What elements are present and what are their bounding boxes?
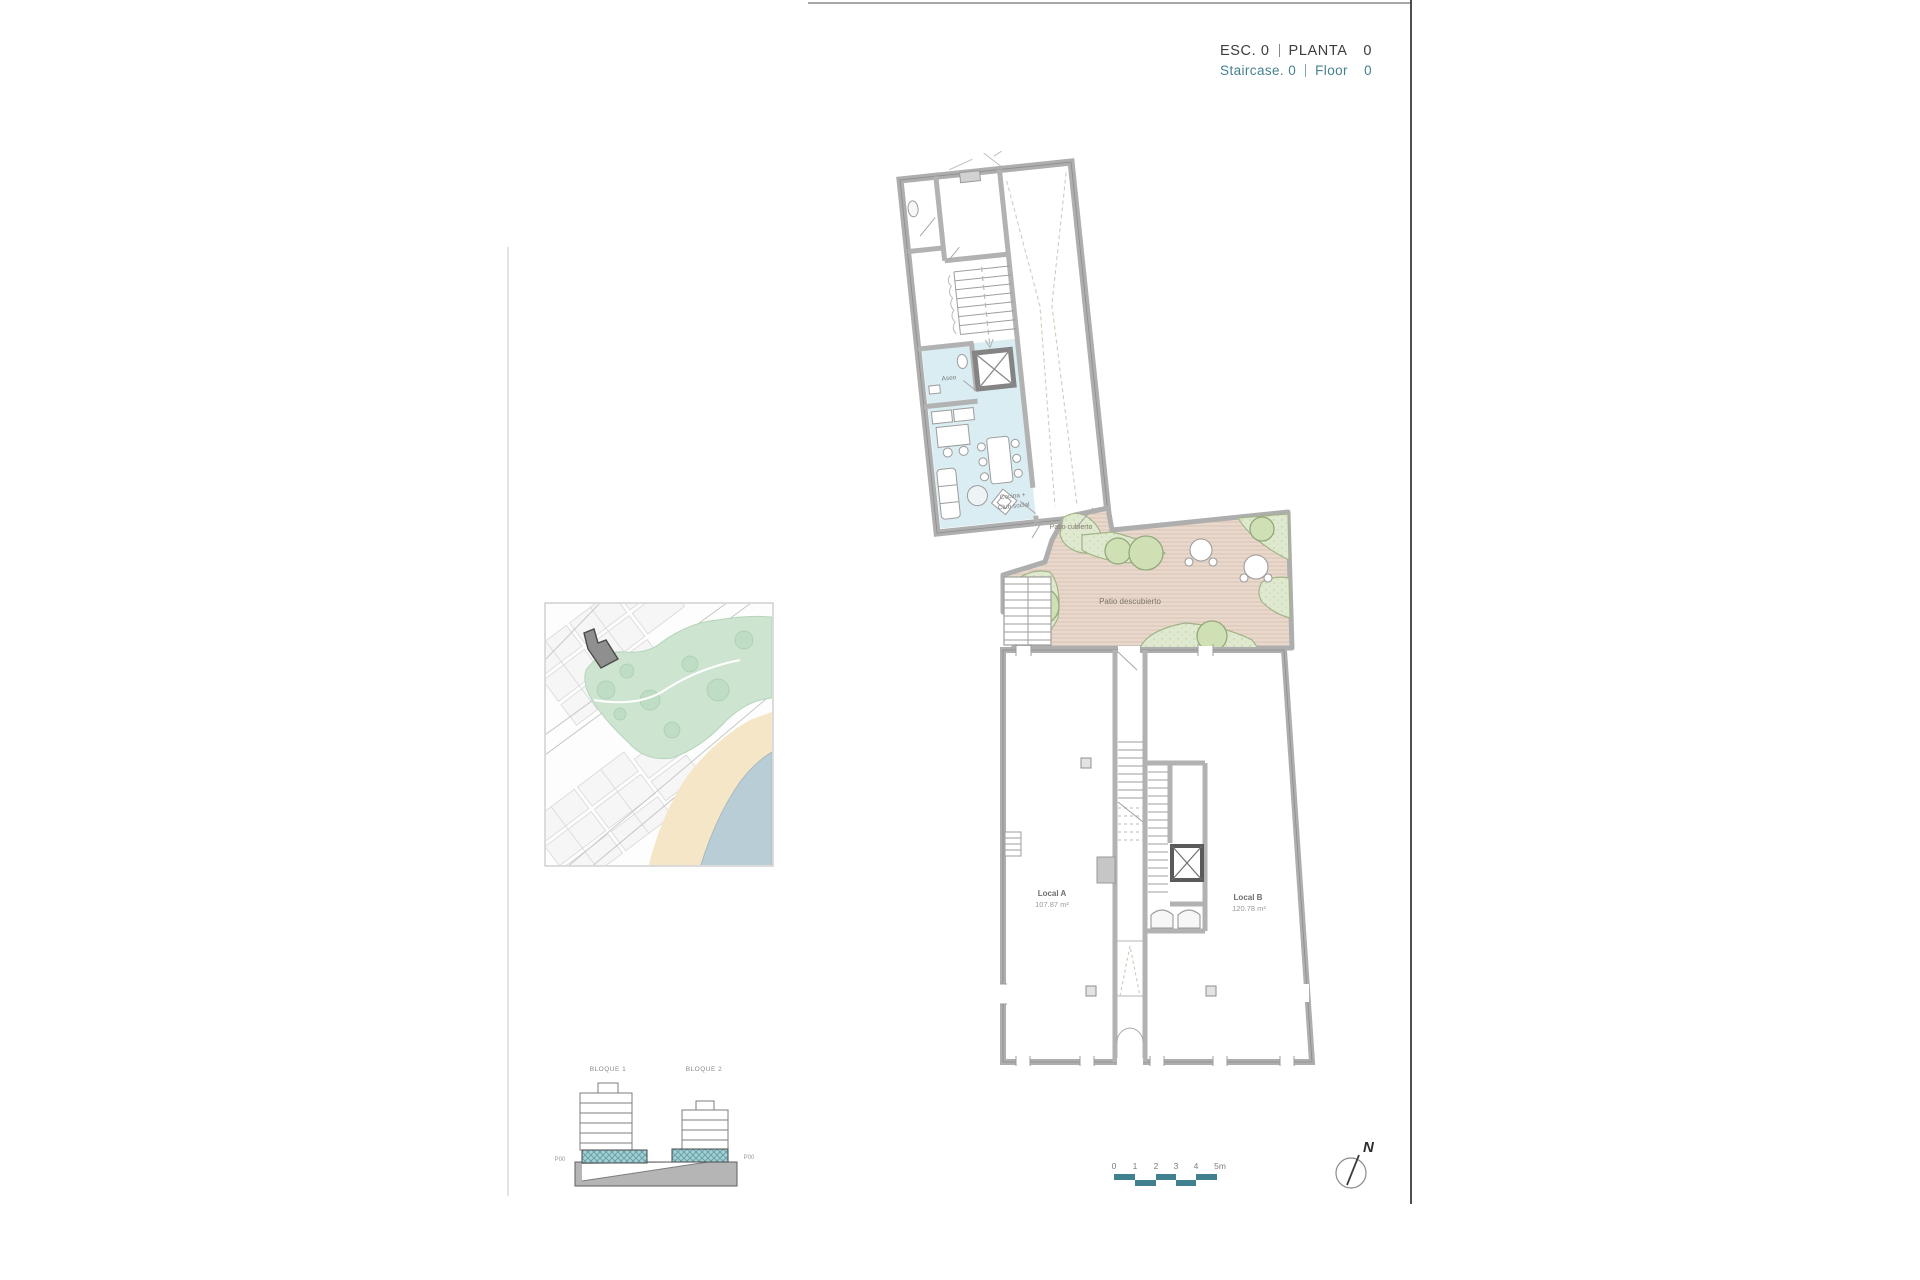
scale-tick-2: 2 bbox=[1154, 1161, 1159, 1171]
north-arrow: N bbox=[1336, 1139, 1375, 1188]
bloque2-label: BLOQUE 2 bbox=[686, 1066, 723, 1073]
scale-bar-segments bbox=[1114, 1174, 1217, 1186]
north-label: N bbox=[1363, 1139, 1375, 1156]
lower-block: Local A 107.87 m² Local B 120.78 m² bbox=[999, 644, 1312, 1066]
floor-highlight-bar-2 bbox=[672, 1149, 728, 1162]
scale-tick-0: 0 bbox=[1112, 1161, 1117, 1171]
bloque2-outline bbox=[682, 1101, 728, 1150]
left-wall-stair bbox=[1005, 832, 1021, 856]
shaft bbox=[1097, 857, 1115, 883]
roof-duct bbox=[960, 171, 981, 183]
patio-covered-label: Patio cubierto bbox=[1050, 524, 1093, 531]
upper-elevator bbox=[975, 349, 1015, 389]
local-b-area: 120.78 m² bbox=[1232, 904, 1266, 913]
compass-needle bbox=[1347, 1155, 1359, 1185]
patio-open-label: Patio descubierto bbox=[1099, 597, 1161, 606]
scale-tick-4: 4 bbox=[1194, 1161, 1199, 1171]
plan-canvas: Aseo Cocina + Club social bbox=[0, 0, 1920, 1280]
scale-tick-1: 1 bbox=[1133, 1161, 1138, 1171]
scale-tick-5: 5m bbox=[1214, 1161, 1226, 1171]
floor-plan-sheet: { "header": { "esc_label": "ESC.", "esc_… bbox=[0, 0, 1920, 1280]
local-b-label: Local B bbox=[1234, 893, 1263, 902]
local-a-area: 107.87 m² bbox=[1035, 900, 1069, 909]
local-a-label: Local A bbox=[1038, 889, 1067, 898]
bloque1-outline bbox=[580, 1083, 632, 1150]
scale-tick-3: 3 bbox=[1174, 1161, 1179, 1171]
site-map bbox=[525, 562, 773, 889]
upper-block: Aseo Cocina + Club social bbox=[898, 144, 1108, 533]
ground-mass bbox=[575, 1162, 737, 1186]
level-label-right: P00 bbox=[744, 1155, 755, 1161]
patio: Patio cubierto Patio descubierto bbox=[1003, 508, 1292, 651]
corridor-top-opening bbox=[1118, 646, 1140, 654]
lower-elevator bbox=[1172, 846, 1202, 880]
floor-highlight-bar-1 bbox=[582, 1150, 647, 1163]
patio-stair bbox=[1004, 577, 1051, 645]
scale-bar: 0 1 2 3 4 5m bbox=[1112, 1161, 1226, 1186]
bloque1-label: BLOQUE 1 bbox=[590, 1066, 627, 1073]
block-key-diagram: BLOQUE 1 BLOQUE 2 P00 P00 bbox=[555, 1066, 755, 1186]
level-label-left: P00 bbox=[555, 1157, 566, 1163]
